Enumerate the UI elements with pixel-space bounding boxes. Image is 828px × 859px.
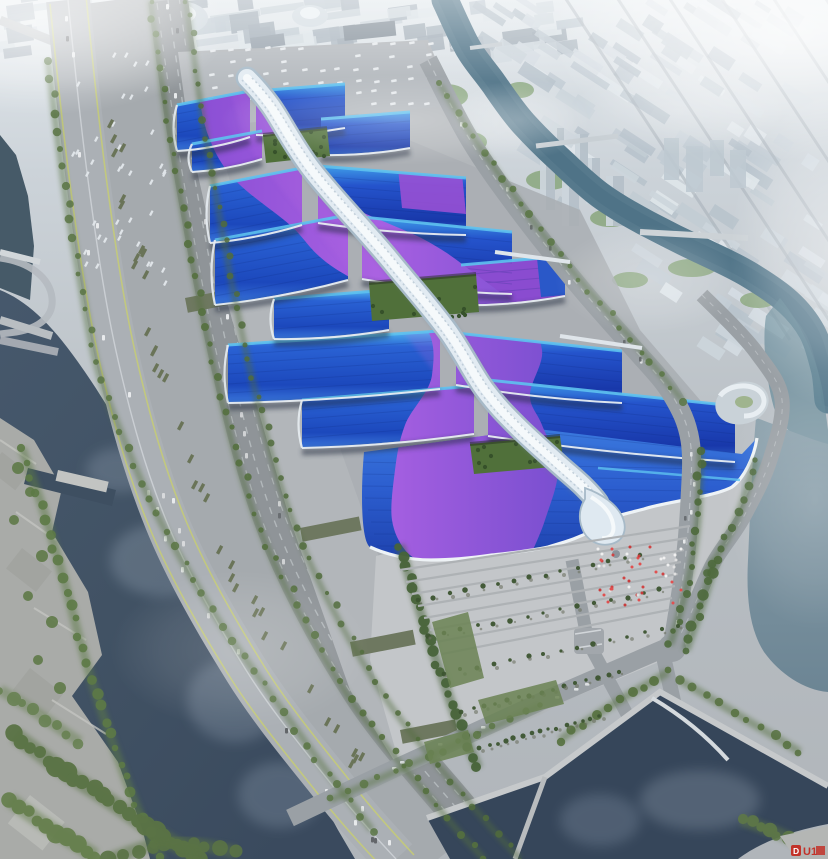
svg-text:U1: U1 <box>803 846 817 858</box>
svg-text:D: D <box>793 846 799 856</box>
